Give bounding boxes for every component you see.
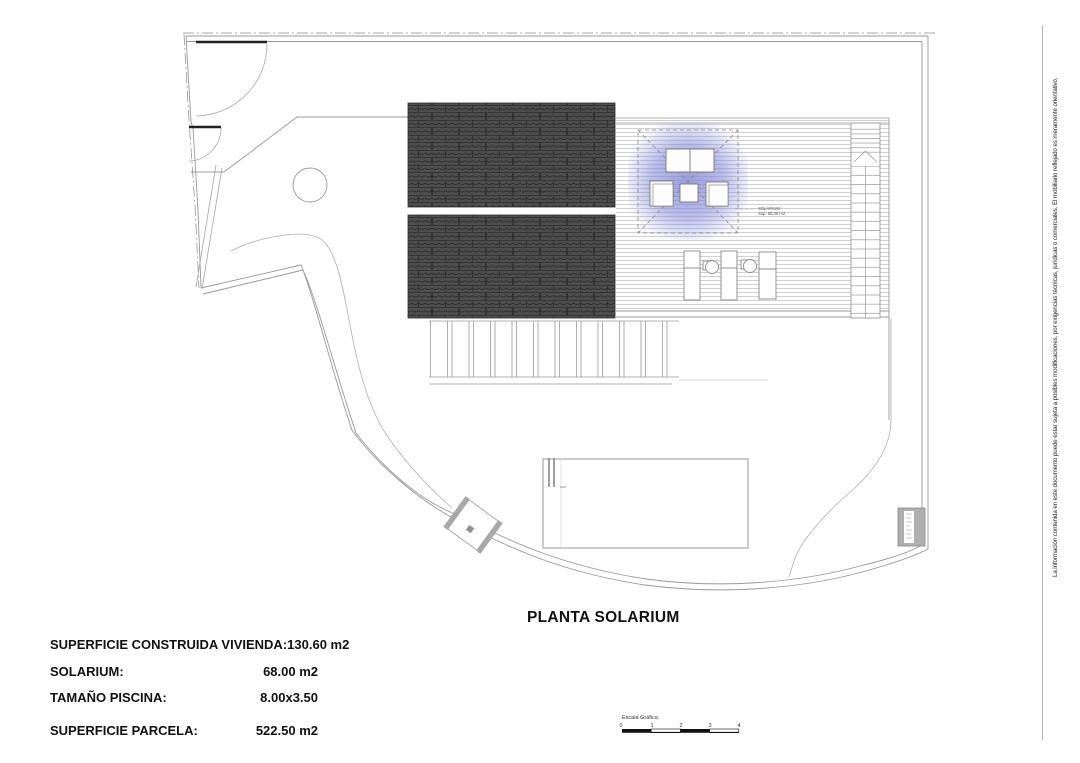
- tree-circle: [293, 168, 327, 202]
- scale-tick-2: 2: [679, 723, 682, 729]
- legal-disclaimer: La información contenida en este documen…: [1052, 77, 1059, 577]
- summary-value: 68.00 m2: [263, 664, 318, 679]
- roof-left-lower: [408, 215, 615, 318]
- sun-loungers: [684, 251, 776, 300]
- drawing-sheet: SOLARIUM Sup. 68.00 m2: [0, 0, 1080, 763]
- sun-lounger: [684, 251, 700, 300]
- sun-lounger: [759, 252, 776, 299]
- scale-tick-3: 3: [708, 723, 711, 729]
- summary-row: SOLARIUM: 68.00 m2: [50, 664, 318, 679]
- pool: [543, 458, 748, 548]
- garden-path-right: [789, 318, 891, 577]
- terrace-edge: [191, 117, 408, 172]
- side-table: [706, 261, 719, 274]
- summary-value: 522.50 m2: [256, 723, 318, 738]
- armchair-right: [706, 182, 728, 206]
- scale-bar-label: Escala Gráfica: [622, 715, 659, 721]
- scale-tick-1: 1: [650, 723, 653, 729]
- scale-tick-4: 4: [737, 723, 740, 729]
- staircase: [851, 123, 880, 318]
- summary-row: TAMAÑO PISCINA: 8.00x3.50: [50, 690, 318, 705]
- side-table: [744, 260, 757, 273]
- sheet-border-line: [1042, 25, 1043, 740]
- armchair-left: [650, 181, 673, 206]
- utility-box: [898, 508, 925, 546]
- solarium-area-label: Sup. 68.00 m2: [758, 211, 786, 216]
- coffee-table: [680, 184, 698, 202]
- sofa: [666, 149, 714, 172]
- summary-label: SUPERFICIE PARCELA:: [50, 723, 198, 738]
- roof-left-upper: [408, 103, 615, 207]
- scale-bar: Escala Gráfica 0 1 2 3 4: [619, 715, 740, 733]
- summary-row: SUPERFICIE CONSTRUIDA VIVIENDA: 130.60 m…: [50, 637, 318, 652]
- scale-tick-0: 0: [619, 723, 622, 729]
- summary-value: 8.00x3.50: [260, 690, 318, 705]
- summary-label: TAMAÑO PISCINA:: [50, 690, 167, 705]
- sun-lounger: [721, 251, 737, 300]
- page-title: PLANTA SOLARIUM: [527, 609, 680, 627]
- summary-label: SOLARIUM:: [50, 664, 124, 679]
- summary-row: SUPERFICIE PARCELA: 522.50 m2: [50, 723, 318, 738]
- summary-value: 130.60 m2: [287, 637, 349, 652]
- entrance-gate: [196, 42, 267, 116]
- louver-panels: [429, 321, 768, 384]
- summary-label: SUPERFICIE CONSTRUIDA VIVIENDA:: [50, 637, 287, 652]
- garden-gate: [443, 496, 503, 554]
